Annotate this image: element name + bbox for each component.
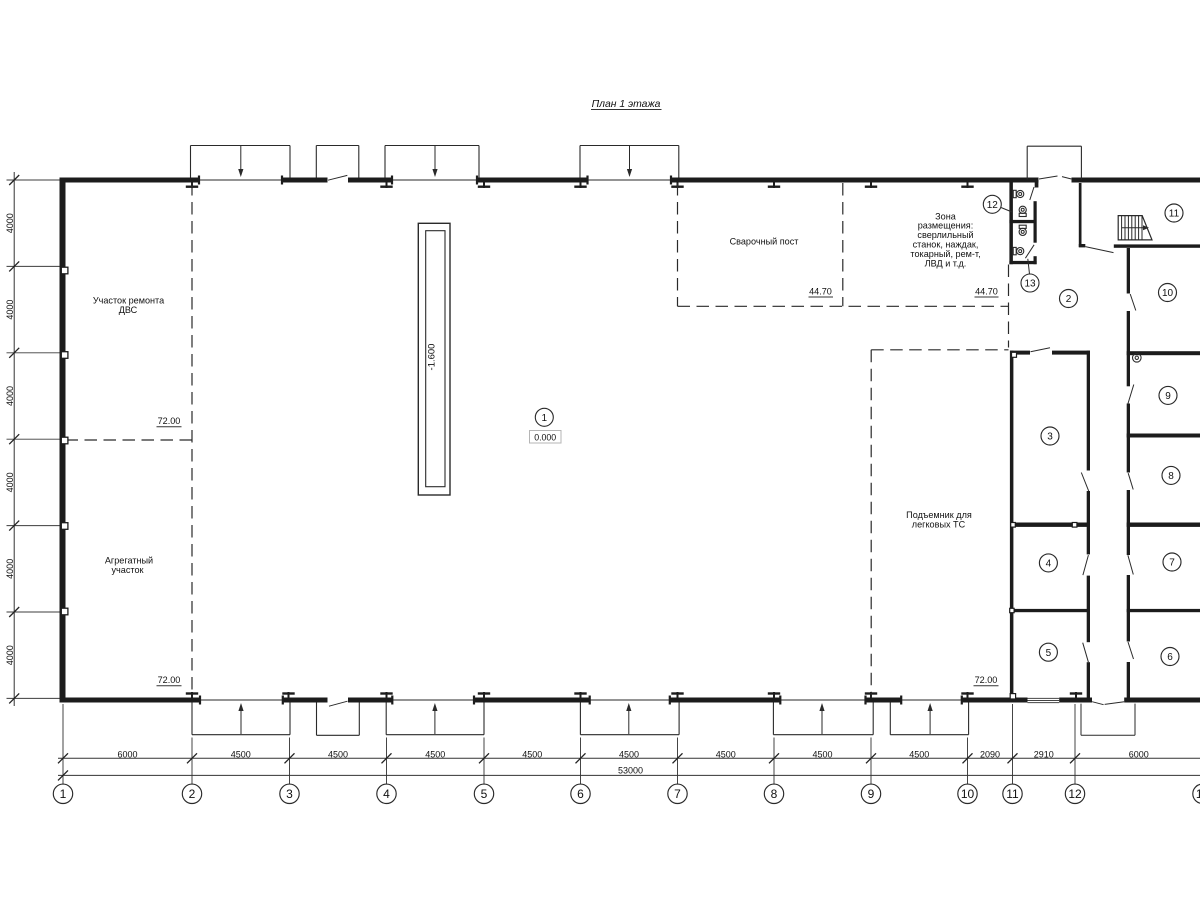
- svg-text:Участок ремонта: Участок ремонта: [93, 296, 165, 306]
- svg-text:11: 11: [1006, 787, 1019, 801]
- svg-text:7: 7: [1169, 558, 1175, 569]
- svg-text:1: 1: [542, 413, 548, 424]
- svg-text:4500: 4500: [716, 749, 736, 759]
- svg-text:12: 12: [1068, 787, 1082, 801]
- svg-text:3: 3: [286, 787, 293, 801]
- svg-text:44.70: 44.70: [975, 287, 998, 297]
- svg-text:участок: участок: [112, 565, 145, 575]
- svg-text:7: 7: [674, 787, 681, 801]
- svg-text:4: 4: [1046, 558, 1052, 569]
- svg-text:2: 2: [189, 787, 196, 801]
- svg-text:4000: 4000: [5, 386, 15, 406]
- svg-text:-1.600: -1.600: [427, 344, 438, 371]
- svg-text:4000: 4000: [5, 300, 15, 320]
- svg-text:11: 11: [1169, 209, 1180, 220]
- svg-text:Агрегатный: Агрегатный: [105, 556, 153, 566]
- svg-text:8: 8: [1168, 471, 1174, 482]
- svg-text:6: 6: [1167, 652, 1173, 663]
- svg-text:10: 10: [1162, 288, 1174, 299]
- svg-text:4000: 4000: [5, 559, 15, 579]
- svg-text:1: 1: [60, 787, 67, 801]
- svg-text:4000: 4000: [5, 472, 15, 492]
- svg-text:12: 12: [987, 200, 999, 211]
- svg-text:4500: 4500: [231, 749, 251, 759]
- svg-text:2090: 2090: [980, 749, 1000, 759]
- svg-text:13: 13: [1024, 279, 1036, 290]
- svg-text:13: 13: [1196, 787, 1200, 801]
- svg-text:4000: 4000: [5, 645, 15, 665]
- svg-text:6000: 6000: [117, 749, 137, 759]
- svg-text:0.000: 0.000: [534, 432, 556, 442]
- svg-text:легковых ТС: легковых ТС: [912, 519, 966, 529]
- svg-text:6: 6: [577, 787, 584, 801]
- svg-text:4500: 4500: [522, 749, 542, 759]
- svg-text:3: 3: [1047, 432, 1053, 443]
- svg-text:ЛВД и т.д.: ЛВД и т.д.: [925, 258, 967, 268]
- svg-text:4500: 4500: [812, 749, 832, 759]
- svg-text:Сварочный пост: Сварочный пост: [730, 237, 800, 247]
- svg-text:8: 8: [771, 787, 778, 801]
- svg-text:4500: 4500: [328, 749, 348, 759]
- svg-text:9: 9: [868, 787, 875, 801]
- svg-text:4500: 4500: [619, 749, 639, 759]
- svg-text:4000: 4000: [5, 213, 15, 233]
- svg-text:72.00: 72.00: [158, 416, 181, 426]
- svg-text:2: 2: [1066, 294, 1072, 305]
- svg-text:44.70: 44.70: [809, 287, 832, 297]
- svg-text:72.00: 72.00: [158, 675, 181, 685]
- svg-text:5: 5: [1046, 648, 1052, 659]
- svg-text:9: 9: [1165, 391, 1171, 402]
- svg-text:План 1 этажа: План 1 этажа: [592, 99, 661, 110]
- svg-text:4500: 4500: [909, 749, 929, 759]
- svg-text:6000: 6000: [1129, 749, 1149, 759]
- svg-text:2910: 2910: [1034, 749, 1054, 759]
- svg-text:10: 10: [961, 787, 975, 801]
- svg-text:5: 5: [481, 787, 488, 801]
- svg-text:4: 4: [383, 787, 390, 801]
- svg-text:72.00: 72.00: [975, 675, 998, 685]
- svg-text:ДВС: ДВС: [119, 305, 138, 315]
- svg-text:53000: 53000: [618, 766, 643, 776]
- svg-text:4500: 4500: [425, 749, 445, 759]
